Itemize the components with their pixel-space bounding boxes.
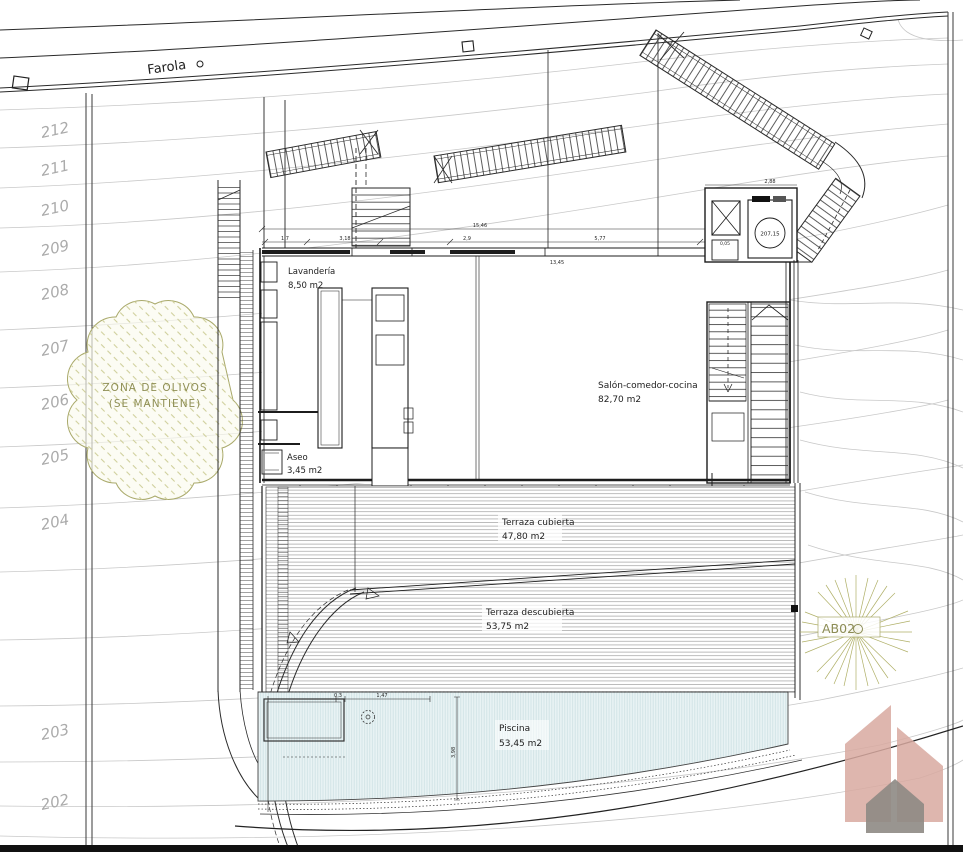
west-exterior-stairs [266,125,626,250]
contour-label-211: 211 [39,156,71,180]
pool-label: Piscina [499,724,530,734]
contour-label-203: 203 [39,720,71,744]
tree-tag-label: AB02 [822,621,855,636]
deck-west-channel [278,487,288,692]
dim-inner-width: 13,45 [550,260,564,266]
contour-label-202: 202 [39,790,71,814]
bathroom-area: 3,45 m2 [287,466,322,476]
road-surface [0,0,963,92]
covered-terrace-label: Terraza cubierta [501,518,575,528]
site-plan-svg: Farola ZONA DE OLIVOS (SE MANTIENE) [0,0,963,852]
contour-label-205: 205 [39,445,71,469]
bottom-border-bar [0,845,963,852]
contour-labels: 212 211 210 209 208 207 206 205 204 203 … [39,118,71,814]
olive-zone-label-line1: ZONA DE OLIVOS [102,382,207,394]
entry-level-value: 207,15 [760,232,780,238]
contour-label-208: 208 [39,280,71,304]
open-terrace-label: Terraza descubierta [485,608,574,618]
contour-label-209: 209 [39,236,71,260]
dim-seg4: 5,77 [594,236,605,242]
dim-overall: 15,46 [473,223,487,229]
dim-pool-seg1: 0,3 [334,693,342,699]
contour-label-212: 212 [39,118,71,142]
covered-terrace-area: 47,80 m2 [502,532,545,542]
streetlight-icon [861,28,873,39]
dim-seg2: 3,18 [339,236,350,242]
laundry-label: Lavandería [288,267,335,277]
dim-seg3: 2,9 [463,236,471,242]
entry-door [752,196,770,202]
stair-flight-lower [751,304,788,481]
olive-zone-label-line2: (SE MANTIENE) [109,398,202,410]
road: Farola [0,0,963,92]
living-room-area: 82,70 m2 [598,395,641,405]
olive-zone: ZONA DE OLIVOS (SE MANTIENE) [67,301,242,500]
contour-label-210: 210 [39,196,71,220]
contour-label-206: 206 [39,390,71,414]
bathroom-label: Aseo [287,453,308,463]
dim-entry-offset: 0,05 [720,241,730,247]
east-rail [794,260,798,483]
entry-block: 207,15 2,88 0,05 [705,179,797,262]
deck-post [791,605,798,612]
contour-label-204: 204 [39,510,71,534]
dim-pool-depth: 3,98 [451,747,457,758]
dim-entry-width: 2,88 [764,179,775,185]
entry-door [773,196,786,202]
floor-plan-drawing: Farola ZONA DE OLIVOS (SE MANTIENE) [0,0,963,852]
living-room-label: Salón-comedor-cocina [598,380,698,391]
open-terrace-area: 53,75 m2 [486,622,529,632]
dim-seg1: 1,7 [281,236,289,242]
contour-label-207: 207 [39,336,71,360]
west-retaining-strip [240,250,253,690]
pool-area: 53,45 m2 [499,739,542,749]
logo-watermark [845,705,943,833]
dim-pool-seg2: 1,47 [376,693,387,699]
pool: 0,3 1,47 3,98 Piscina 53,45 m2 [258,692,788,812]
stair-flight-upper [709,304,746,401]
